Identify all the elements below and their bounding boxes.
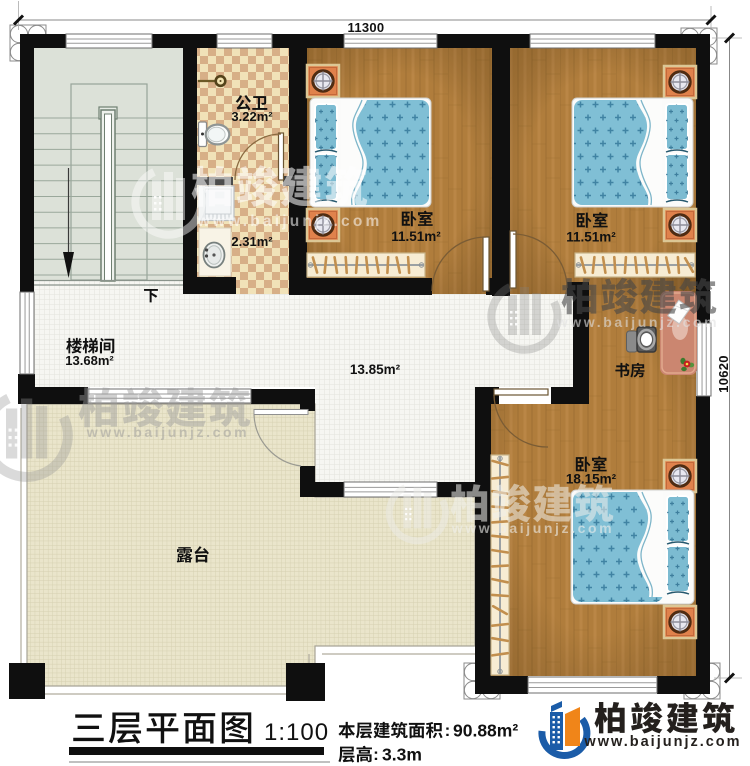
svg-text:1:100: 1:100: [264, 719, 329, 746]
svg-text:90.88m²: 90.88m²: [453, 721, 518, 741]
svg-text:11.51m²: 11.51m²: [566, 230, 616, 245]
svg-text:11300: 11300: [348, 20, 385, 35]
svg-text:13.68m²: 13.68m²: [65, 353, 114, 368]
svg-text:www.baijunjz.com: www.baijunjz.com: [197, 213, 383, 230]
svg-text:www.baijunjz.com: www.baijunjz.com: [556, 314, 719, 330]
svg-text::: :: [373, 745, 379, 764]
svg-text:11.51m²: 11.51m²: [391, 229, 441, 244]
svg-text:2.31m²: 2.31m²: [231, 234, 273, 249]
svg-text:www.baijunjz.com: www.baijunjz.com: [86, 424, 249, 440]
svg-text:10620: 10620: [716, 355, 731, 393]
svg-text:www.baijunjz.com: www.baijunjz.com: [451, 520, 614, 536]
svg-text:13.85m²: 13.85m²: [350, 362, 401, 377]
svg-text:3.3m: 3.3m: [382, 745, 422, 765]
svg-text::: :: [445, 721, 451, 740]
svg-text:3.22m²: 3.22m²: [231, 109, 273, 124]
svg-text:18.15m²: 18.15m²: [566, 472, 617, 487]
svg-text:www.baijunjz.com: www.baijunjz.com: [583, 734, 741, 750]
